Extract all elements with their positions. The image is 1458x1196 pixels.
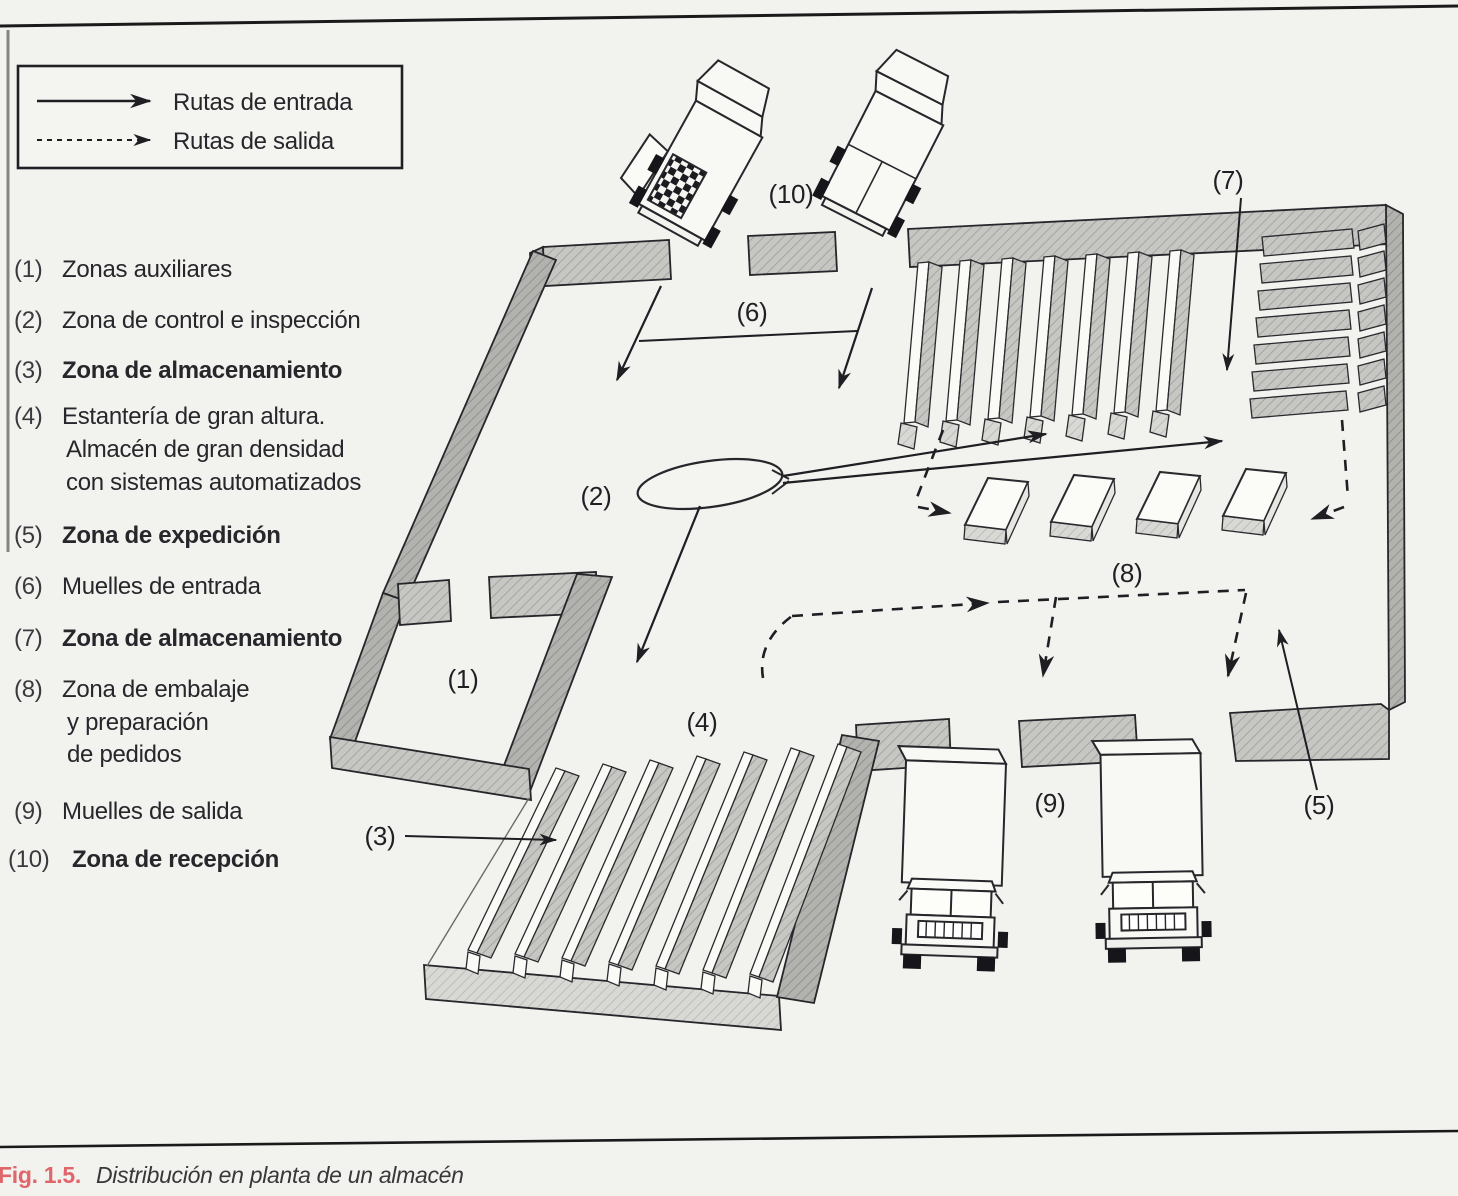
packing-tables-zone8 [964, 469, 1287, 544]
entry-arrow-dock-right [839, 288, 872, 388]
zone-label-6: (6) [737, 297, 768, 327]
highbay-rack-stack [1250, 224, 1386, 418]
rack-shape [1108, 413, 1127, 439]
zone-text-10: Zona de recepción [72, 846, 279, 873]
zone-text-8c: de pedidos [67, 741, 182, 768]
zone-text-9: Muelles de salida [62, 798, 243, 825]
caption-rule [0, 1131, 1458, 1147]
zone-label-9: (9) [1035, 788, 1066, 818]
warehouse-diagram: Rutas de entrada Rutas de salida (1) Zon… [0, 0, 1458, 1196]
grille [918, 921, 983, 939]
figure-title: Distribución en planta de un almacén [96, 1162, 464, 1188]
rack-shape [1358, 305, 1386, 331]
zone-text-8a: Zona de embalaje [62, 676, 249, 703]
truck-shipping-2 [1092, 739, 1212, 963]
entry-arrow-dock-left [617, 286, 661, 380]
zone-text-1: Zonas auxiliares [62, 256, 232, 283]
scanned-figure-page: Rutas de entrada Rutas de salida (1) Zon… [0, 0, 1458, 1196]
zone-num-7: (7) [14, 625, 42, 652]
bottom-wall-right [1230, 704, 1389, 761]
zone-num-8: (8) [14, 676, 42, 703]
zone-text-3: Zona de almacenamiento [62, 357, 342, 384]
rack-shape [898, 423, 917, 449]
truck-receiving-2 [810, 46, 972, 242]
zone-label-5: (5) [1304, 790, 1335, 820]
zone-text-2: Zona de control e inspección [62, 307, 360, 334]
zone-text-8b: y preparación [67, 709, 209, 736]
arrow-to-highbay [783, 441, 1222, 483]
rack-shape [1252, 364, 1349, 391]
exit-dash-a2 [918, 507, 950, 513]
zone-text-4b: Almacén de gran densidad [66, 436, 344, 463]
exit-dash-c2 [792, 603, 988, 616]
zone-label-3: (3) [365, 821, 396, 851]
zone-num-2: (2) [14, 307, 42, 334]
right-wall [1386, 205, 1405, 710]
zone-num-4: (4) [14, 403, 42, 430]
zone-label-1: (1) [448, 664, 479, 694]
legend-entry-label: Rutas de entrada [173, 89, 353, 116]
rack-shape [1256, 310, 1351, 337]
zone-text-7: Zona de almacenamiento [62, 625, 342, 652]
control-inspection-ellipse [635, 451, 789, 517]
figure-caption: Fig. 1.5. Distribución en planta de un a… [0, 1162, 464, 1188]
truck-receiving-1 [610, 47, 792, 252]
aux-room-bottom-wall [330, 737, 531, 800]
rack-shape [1150, 411, 1169, 437]
exit-dash-branch2 [1228, 593, 1246, 676]
zone-num-3: (3) [14, 357, 42, 384]
exit-dash-b2 [1312, 507, 1344, 519]
aux-room-door-block [398, 580, 451, 625]
rack-shape [1358, 332, 1386, 358]
legend: Rutas de entrada Rutas de salida [18, 66, 402, 168]
zone-text-4a: Estantería de gran altura. [62, 403, 325, 430]
exit-dash-c1 [762, 616, 792, 678]
zone-num-6: (6) [14, 573, 42, 600]
grille [1121, 913, 1185, 930]
legend-exit-label: Rutas de salida [173, 128, 335, 155]
zone-label-7: (7) [1213, 165, 1244, 195]
zone-label-10: (10) [768, 179, 813, 209]
zone-label-4: (4) [687, 707, 718, 737]
rack-shape [1358, 278, 1386, 304]
top-wall-segment-1 [543, 240, 671, 286]
zone-text-4c: con sistemas automatizados [66, 469, 361, 496]
truck-shipping-1 [891, 746, 1015, 972]
aux-room-left-wall [330, 593, 406, 747]
zone-label-2: (2) [581, 481, 612, 511]
zone-label-8: (8) [1112, 558, 1143, 588]
zone-list: (1) Zonas auxiliares (2) Zona de control… [8, 256, 361, 873]
exit-dash-c3 [998, 590, 1245, 602]
storage-racks-zone7 [898, 250, 1194, 449]
dock-connector-line [639, 331, 857, 341]
rack-shape [1258, 283, 1352, 310]
zone-num-1: (1) [14, 256, 42, 283]
exit-dash-branch1 [1043, 597, 1056, 676]
rack-shape [1024, 417, 1043, 443]
rack-shape [1250, 391, 1348, 418]
arrow-to-aux-room [637, 506, 700, 662]
zone-num-9: (9) [14, 798, 42, 825]
rack-shape [1358, 359, 1386, 385]
top-wall-segment-2 [748, 232, 837, 275]
zone-num-5: (5) [14, 522, 42, 549]
exit-route-dashed [762, 420, 1348, 678]
rack-shape [1358, 251, 1386, 277]
zone-text-5: Zona de expedición [62, 522, 281, 549]
rack-shape [1254, 337, 1350, 364]
figure-number: Fig. 1.5. [0, 1162, 81, 1188]
zone-text-6: Muelles de entrada [62, 573, 262, 600]
rack-shape [1066, 415, 1085, 441]
top-rule [0, 6, 1458, 26]
left-wall [383, 251, 556, 601]
rack-shape [1358, 386, 1386, 412]
exit-dash-a1 [916, 430, 943, 500]
zone-num-10: (10) [8, 846, 49, 873]
exit-dash-b1 [1342, 420, 1348, 498]
rack-shape [1260, 256, 1353, 283]
